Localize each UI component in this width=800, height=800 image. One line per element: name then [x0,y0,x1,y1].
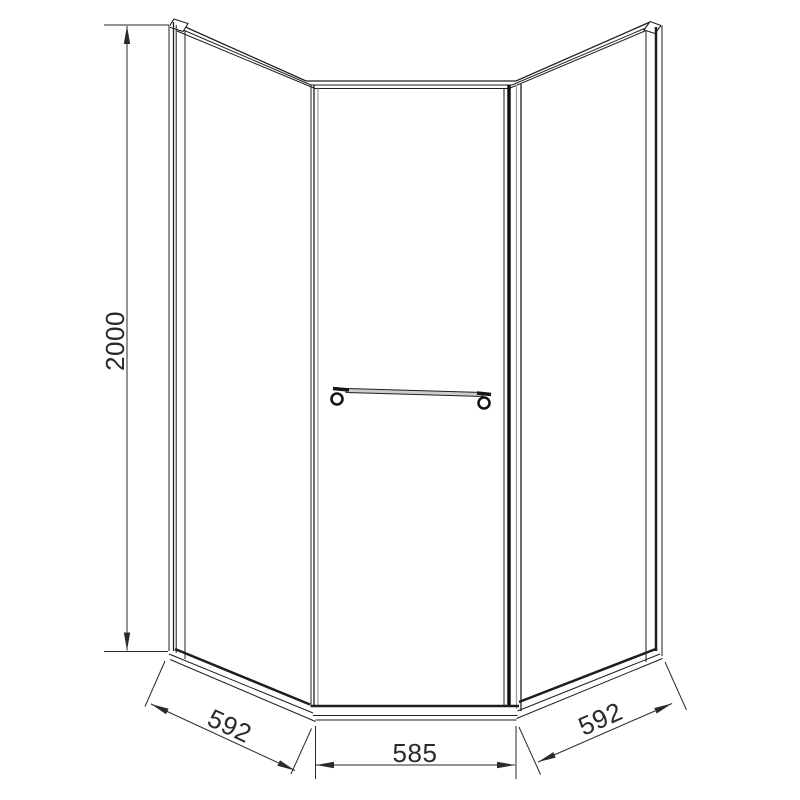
front-width-arrowhead-a [316,762,334,768]
towel-bar-rail [346,389,483,397]
top-left-profile-cap [169,19,188,32]
bottom-right-mid-line [518,654,661,711]
door-left-frame [311,85,318,707]
left-width-extension-line-b [291,729,312,775]
front-width-arrowhead-b [497,762,515,768]
towel-bar [332,389,492,409]
height-dimension-label: 2000 [100,311,130,371]
right-width-dimension-label: 592 [574,696,627,742]
top-frame [169,19,661,89]
bottom-left-base-band [175,649,310,705]
bottom-left-mid-line [169,654,313,713]
height-arrowhead-bottom [124,633,130,651]
bottom-right-base-band [519,649,657,703]
top-frame-inner-line [177,31,645,89]
right-width-arrowhead-a [538,752,556,762]
right-width-extension-line-b [665,662,687,710]
left-width-arrowhead-b [277,760,295,770]
drawing-canvas: 2000 592 585 592 [0,0,800,800]
height-arrowhead-top [124,26,130,44]
bottom-frame-left-slope [169,649,316,722]
bottom-frame-front [311,706,519,720]
left-width-dimension-label: 592 [203,703,256,749]
dimension-height: 2000 [100,25,169,652]
left-width-arrowhead-a [151,704,169,714]
towel-bar-left-ring [332,394,343,405]
door-right-frame [504,84,521,711]
towel-bar-left-mount [333,389,349,391]
dimension-front-width: 585 [316,726,517,779]
dimension-right-width: 592 [519,662,687,775]
front-width-dimension-label: 585 [393,738,438,768]
towel-bar-right-mount [477,393,491,395]
right-wall-frame [646,25,662,662]
right-width-extension-line-a [519,727,541,775]
right-width-arrowhead-b [654,704,672,714]
left-width-extension-line-a [145,661,165,707]
left-wall-frame [169,22,185,659]
top-frame-middle-line [174,26,648,85]
shower-enclosure-technical-drawing: 2000 592 585 592 [0,0,800,800]
top-frame-outer-line [172,21,650,81]
towel-bar-right-ring [479,398,490,409]
bottom-left-outer-line [170,660,316,722]
